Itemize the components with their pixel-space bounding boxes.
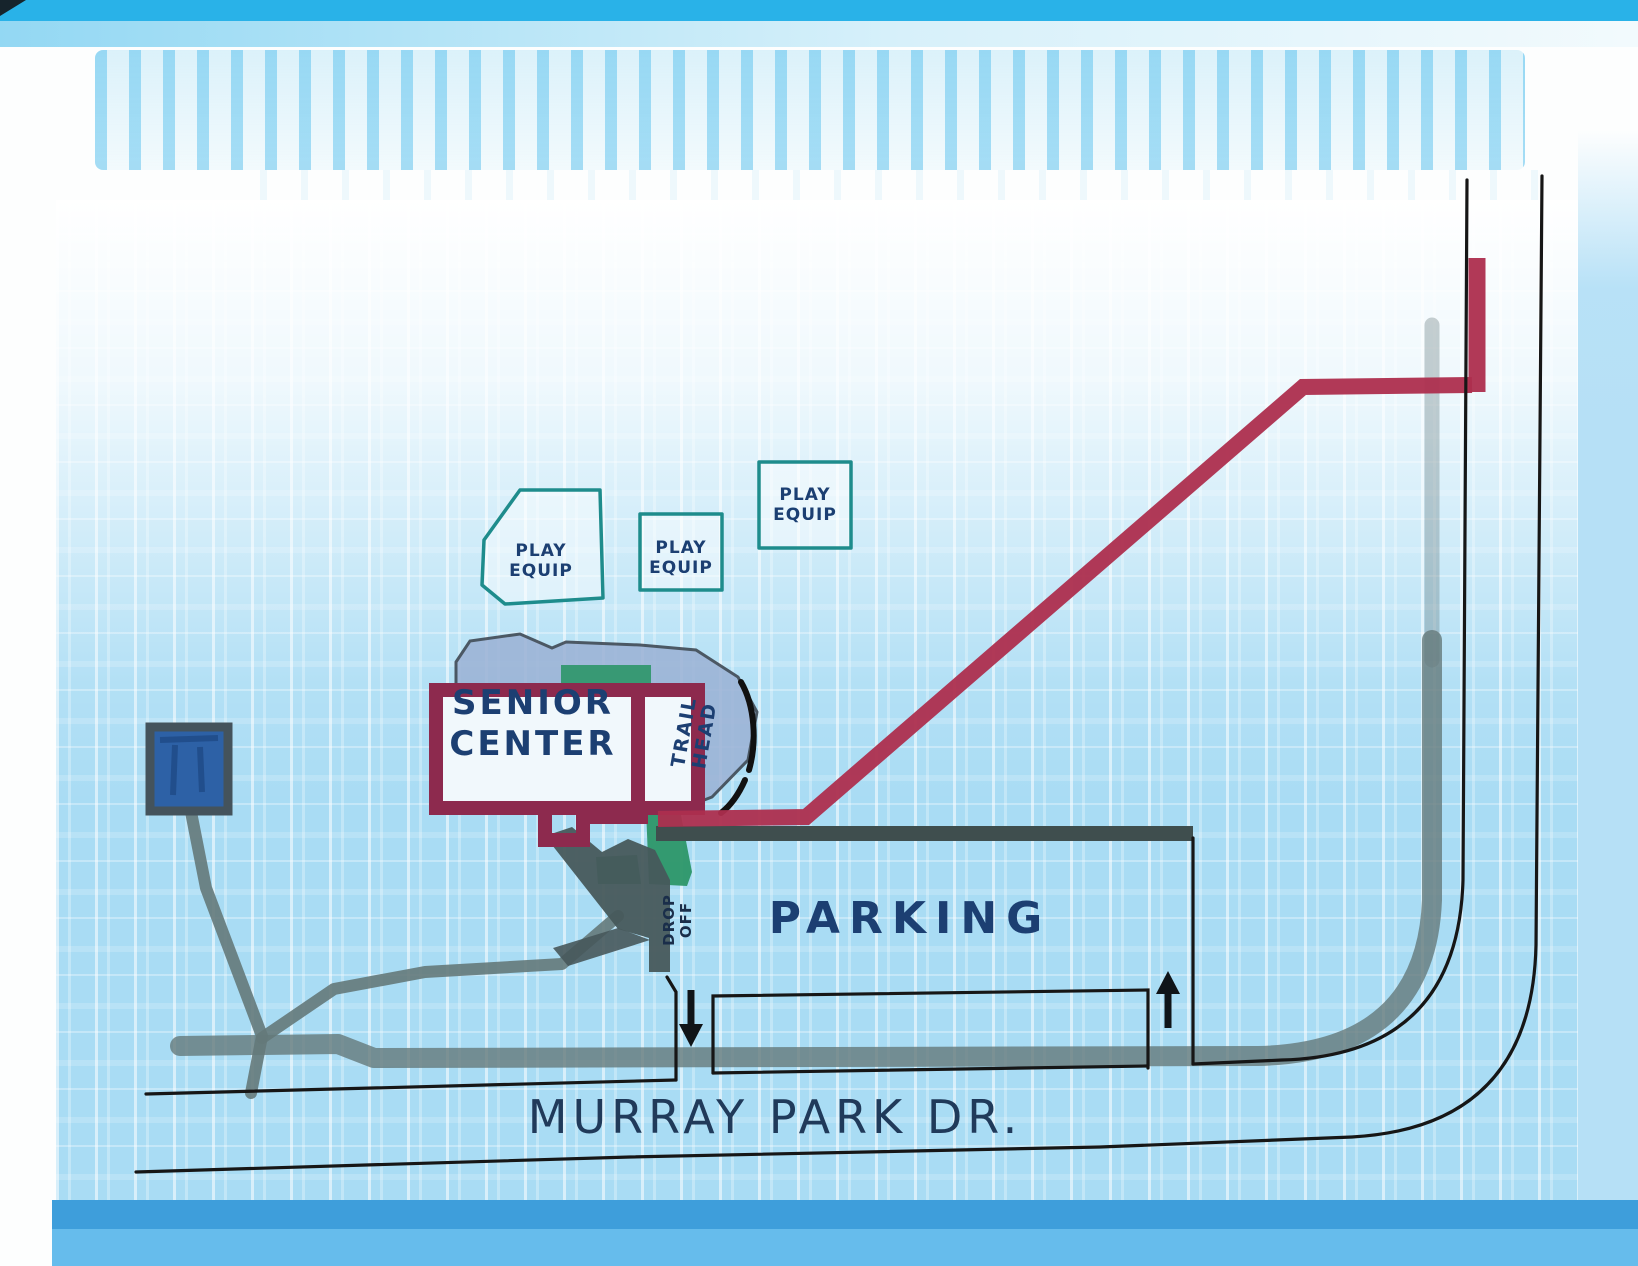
play-equip-1-label-line1: PLAY bbox=[515, 541, 566, 561]
parking-label: PARKING bbox=[769, 893, 1052, 944]
play-equip-2-label-line1: PLAY bbox=[655, 538, 706, 558]
walkway-to-drop-off bbox=[262, 916, 618, 1038]
road-edge-lower-curve bbox=[136, 176, 1542, 1172]
play-equip-1-label-line2: EQUIP bbox=[509, 561, 573, 581]
drop-off-label-line2: OFF bbox=[677, 902, 695, 938]
exit-arrow-icon bbox=[1156, 971, 1180, 1028]
drop-off-label-line1: DROP bbox=[660, 894, 678, 946]
street-name-label: MURRAY PARK DR. bbox=[528, 1090, 1022, 1144]
play-equip-3-label-line1: PLAY bbox=[779, 485, 830, 505]
play-equip-2-label-line2: EQUIP bbox=[649, 558, 713, 578]
parking-lot-north-curb bbox=[656, 826, 1193, 841]
lawn-strip-north bbox=[561, 665, 651, 683]
entrance-arrow-icon bbox=[679, 990, 703, 1047]
trail-path bbox=[658, 385, 1472, 819]
play-equip-3-label-line2: EQUIP bbox=[773, 505, 837, 525]
scanned-site-map: SENIOR CENTER TRAIL HEAD bbox=[0, 0, 1638, 1266]
drop-off-label: DROP OFF bbox=[660, 894, 695, 946]
senior-center-label-line1: SENIOR bbox=[452, 683, 614, 723]
senior-center-label-line2: CENTER bbox=[449, 724, 616, 764]
